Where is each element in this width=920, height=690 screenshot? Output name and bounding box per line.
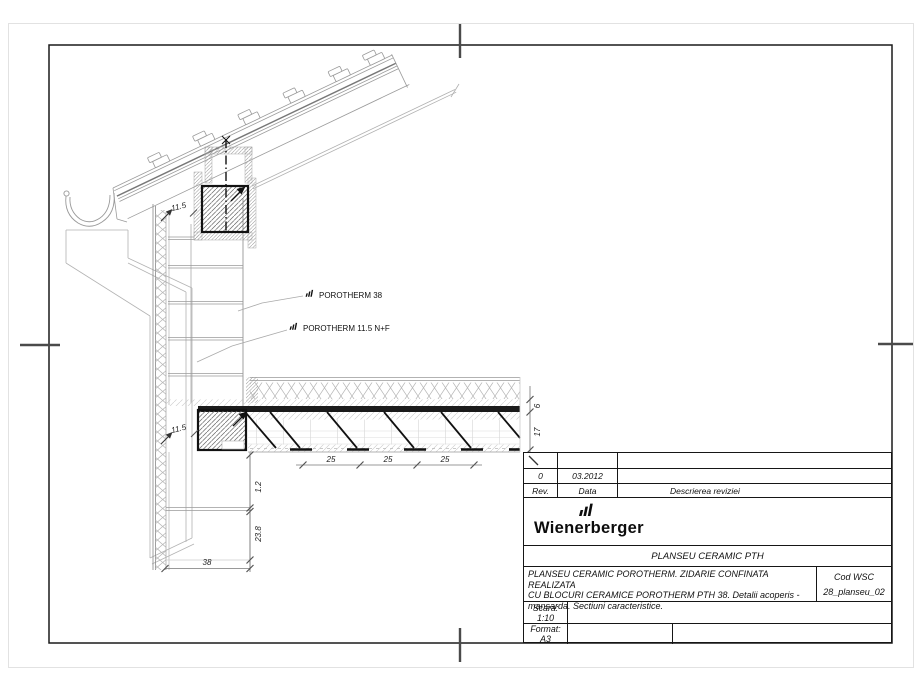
slab-insulation-hatch <box>250 383 520 400</box>
floor-slab <box>166 377 520 452</box>
dim-spacing-3: 25 <box>440 455 450 464</box>
ring-beam-roof <box>194 136 256 248</box>
scale-cell: Scara: 1:10 <box>524 602 568 623</box>
dim-slab-height: 17 <box>533 427 542 436</box>
revision-date: 03.2012 <box>558 469 618 483</box>
roof-section <box>113 47 459 222</box>
wienerberger-mini-icon <box>290 323 298 330</box>
scale-label: Scara: <box>533 603 558 613</box>
description-text: PLANSEU CERAMIC POROTHERM. ZIDARIE CONFI… <box>524 567 816 601</box>
dim-spacing-2: 25 <box>383 455 393 464</box>
gutter <box>64 191 114 226</box>
date-label: Data <box>558 484 618 497</box>
format-value: A3 <box>540 634 551 644</box>
format-cell: Format: A3 <box>524 624 568 644</box>
revision-row-0: 0 03.2012 <box>524 468 891 483</box>
dim-spacing-1: 25 <box>326 455 336 464</box>
wienerberger-mini-icon <box>306 290 314 297</box>
code-value: 28_planseu_02 <box>823 587 885 597</box>
drawing-sheet: POROTHERM 38 POROTHERM 11.5 N+F 11.5 11.… <box>0 0 920 690</box>
revision-mark-cell <box>524 453 558 468</box>
revision-description <box>618 469 891 483</box>
callouts: POROTHERM 38 POROTHERM 11.5 N+F <box>197 290 390 362</box>
brand-block: Wienerberger <box>524 497 891 545</box>
revision-header-row: Rev. Data Descrierea reviziei <box>524 483 891 497</box>
wienerberger-logo-icon <box>578 502 594 518</box>
scale-value: 1:10 <box>537 613 554 623</box>
scale-row: Scara: 1:10 <box>524 601 891 623</box>
format-label: Format: <box>530 624 560 634</box>
desc-label: Descrierea reviziei <box>618 484 891 497</box>
roof-battens <box>147 47 384 169</box>
insulation-upstand <box>246 377 258 403</box>
code-cell: Cod WSC 28_planseu_02 <box>816 567 891 601</box>
dim-wall-width: 38 <box>203 558 212 567</box>
dim-leaf-slab: 11.5 <box>170 422 187 434</box>
dim-leaf-upper: 11.5 <box>170 200 187 212</box>
wall-section <box>153 198 250 570</box>
rev-label: Rev. <box>524 484 558 497</box>
document-title: PLANSEU CERAMIC PTH <box>524 545 891 566</box>
revision-diagonal-mark <box>524 453 557 468</box>
title-block: 0 03.2012 Rev. Data Descrierea reviziei … <box>523 452 892 643</box>
dim-block-height: 23.8 <box>254 526 263 543</box>
revision-row-empty <box>524 453 891 468</box>
callout-porotherm-115: POROTHERM 11.5 N+F <box>303 324 390 333</box>
dim-screed: 1.2 <box>254 481 263 493</box>
ceramic-blocks <box>248 420 520 445</box>
dim-topping: 6 <box>533 403 542 408</box>
downspout <box>66 230 194 564</box>
wall-insulation-hatch <box>156 210 167 570</box>
revision-number: 0 <box>524 469 558 483</box>
brand-name: Wienerberger <box>534 519 644 538</box>
description-row: PLANSEU CERAMIC POROTHERM. ZIDARIE CONFI… <box>524 566 891 601</box>
code-label: Cod WSC <box>834 572 874 582</box>
format-row: Format: A3 <box>524 623 891 644</box>
callout-porotherm-38: POROTHERM 38 <box>319 291 383 300</box>
